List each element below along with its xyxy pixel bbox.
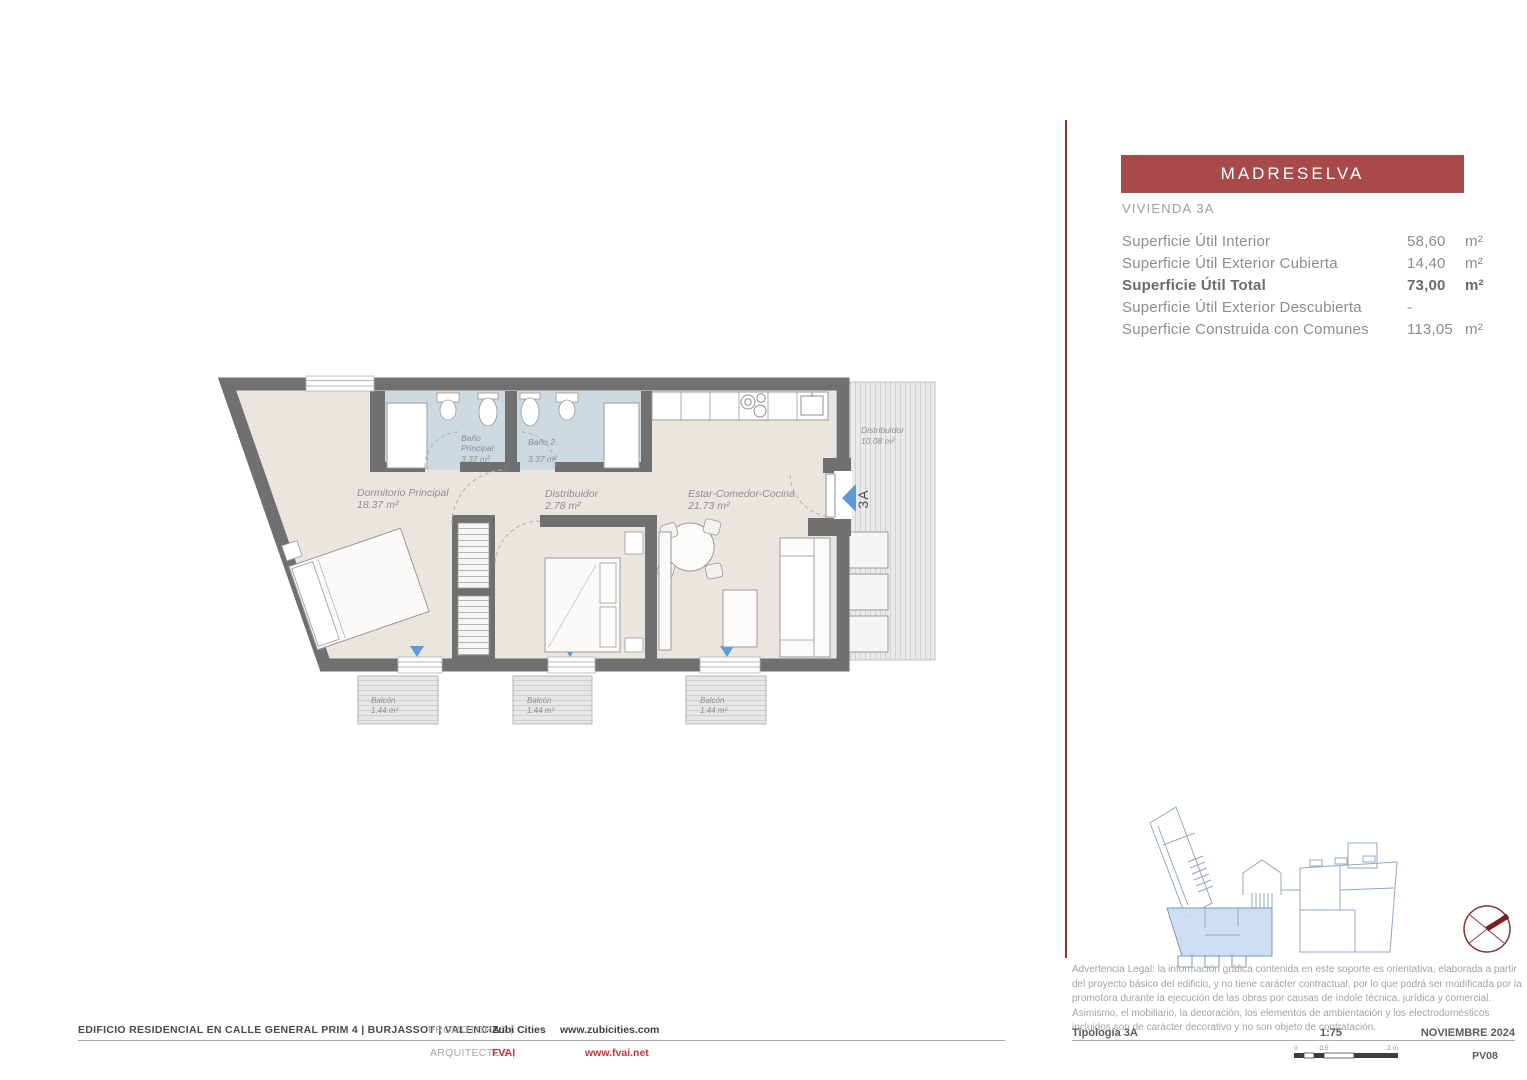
balcony-2 <box>513 676 592 724</box>
balcon1-label: Balcón <box>371 696 396 705</box>
area-value: 73,00 <box>1407 275 1465 297</box>
area-label: Superficie Útil Exterior Cubierta <box>1122 253 1407 275</box>
toilet-bowl <box>440 400 456 420</box>
date-label: NOVIEMBRE 2024 <box>1408 1027 1515 1039</box>
distribuidor-area: 2.78 m² <box>544 500 581 512</box>
dormitorio-area: 18.37 m² <box>357 499 399 511</box>
tv-unit <box>659 532 671 650</box>
scale-bar-segments <box>1294 1053 1398 1058</box>
plan-sheet: { "panel": { "title": "MADRESELVA", "sub… <box>0 0 1527 1080</box>
siteplan-unit-3a-highlight <box>1167 908 1272 967</box>
closet-lower <box>458 596 489 655</box>
promotores-name: Zubi Cities <box>492 1024 546 1036</box>
arquitectos-website-link[interactable]: www.fvai.net <box>585 1047 649 1059</box>
siteplan-stairs <box>1188 856 1213 892</box>
estar-label: Estar-Comedor-Cocina <box>688 488 795 500</box>
dormitorio-label: Dormitorio Principal <box>357 487 449 499</box>
area-row: Superficie Útil Exterior Descubierta - <box>1122 297 1494 319</box>
area-row-total: Superficie Útil Total 73,00 m² <box>1122 275 1494 297</box>
closet-upper <box>458 523 489 588</box>
shower <box>604 403 639 468</box>
building-title: MADRESELVA <box>1221 164 1365 184</box>
area-label: Superficie Útil Total <box>1122 275 1407 297</box>
sheet-number: PV08 <box>1455 1050 1515 1062</box>
tipologia-label: Tipología 3A <box>1072 1027 1138 1039</box>
area-value: 58,60 <box>1407 231 1465 253</box>
area-unit <box>1465 297 1494 319</box>
balcony-3 <box>686 676 766 724</box>
area-value: 14,40 <box>1407 253 1465 275</box>
unit-subtitle: VIVIENDA 3A <box>1122 201 1215 216</box>
site-key-plan <box>1130 793 1525 971</box>
sofa <box>780 538 830 657</box>
bano1-label-line2: Principal <box>461 443 495 453</box>
sideboard <box>723 590 757 647</box>
unit-marker-label: 3A <box>855 489 871 508</box>
area-unit: m² <box>1465 231 1494 253</box>
top-window <box>306 376 374 391</box>
floor-plan: 3A Dormitorio Principal 18.37 m² Baño Pr… <box>0 0 1066 1080</box>
legal-disclaimer: Advertencia Legal: la información gráfic… <box>1072 963 1522 1036</box>
scale-half: 0.5 <box>1319 1045 1328 1052</box>
toilet-bowl <box>559 400 575 420</box>
siteplan-wing <box>1150 807 1213 917</box>
balcon3-area: 1.44 m² <box>700 706 727 715</box>
bano1-label-line1: Baño <box>461 433 481 443</box>
area-label: Superficie Construida con Comunes <box>1122 319 1407 341</box>
nightstand <box>625 532 643 554</box>
sink-bowl <box>521 398 539 426</box>
scale-label: 1:75 <box>1320 1027 1342 1039</box>
nightstand <box>625 638 643 652</box>
sink-bowl <box>479 398 497 426</box>
area-value: 113,05 <box>1407 319 1465 341</box>
terraza-area: 10.08 m² <box>861 436 896 446</box>
area-unit: m² <box>1465 253 1494 275</box>
kitchen-counter <box>652 392 828 420</box>
area-row: Superficie Útil Exterior Cubierta 14,40 … <box>1122 253 1494 275</box>
areas-table: Superficie Útil Interior 58,60 m² Superf… <box>1122 231 1494 341</box>
area-label: Superficie Útil Exterior Descubierta <box>1122 297 1407 319</box>
promotores-website-link[interactable]: www.zubicities.com <box>560 1024 659 1036</box>
area-value: - <box>1407 297 1465 319</box>
scale-bar: 0 0.5 2 m <box>1292 1044 1407 1062</box>
bano2-area: 3.37 m² <box>528 454 558 464</box>
area-row: Superficie Construida con Comunes 113,05… <box>1122 319 1494 341</box>
title-bar: MADRESELVA <box>1121 155 1464 193</box>
terraza-label: Distribuidor <box>861 425 905 435</box>
arquitectos-name: FVAI <box>492 1047 515 1059</box>
pillow <box>600 563 616 603</box>
area-unit: m² <box>1465 319 1494 341</box>
balcon3-label: Balcón <box>700 696 725 705</box>
pillow <box>600 607 616 647</box>
terrace-chair <box>848 616 888 652</box>
terrace-chair <box>848 574 888 610</box>
footer-rule-right <box>1072 1040 1515 1041</box>
shower <box>387 403 427 468</box>
north-arrow-icon <box>1464 906 1510 952</box>
balcon1-area: 1.44 m² <box>371 706 398 715</box>
balcon2-area: 1.44 m² <box>527 706 554 715</box>
area-unit: m² <box>1465 275 1494 297</box>
terrace-chair <box>848 532 888 568</box>
terrace <box>845 382 935 660</box>
bano2-label: Baño 2 <box>528 437 555 447</box>
siteplan-core <box>1243 860 1300 908</box>
scale-zero: 0 <box>1294 1045 1298 1052</box>
distribuidor-label: Distribuidor <box>545 488 599 500</box>
footer-rule-left <box>78 1040 1005 1041</box>
bano1-area: 3.37 m² <box>461 454 491 464</box>
scale-two: 2 m <box>1387 1045 1398 1052</box>
balcon2-label: Balcón <box>527 696 552 705</box>
estar-area: 21.73 m² <box>687 500 730 512</box>
area-row: Superficie Útil Interior 58,60 m² <box>1122 231 1494 253</box>
red-divider-line <box>1065 120 1067 958</box>
area-label: Superficie Útil Interior <box>1122 231 1407 253</box>
siteplan-right-building <box>1300 843 1397 952</box>
balcony-1 <box>358 676 438 724</box>
